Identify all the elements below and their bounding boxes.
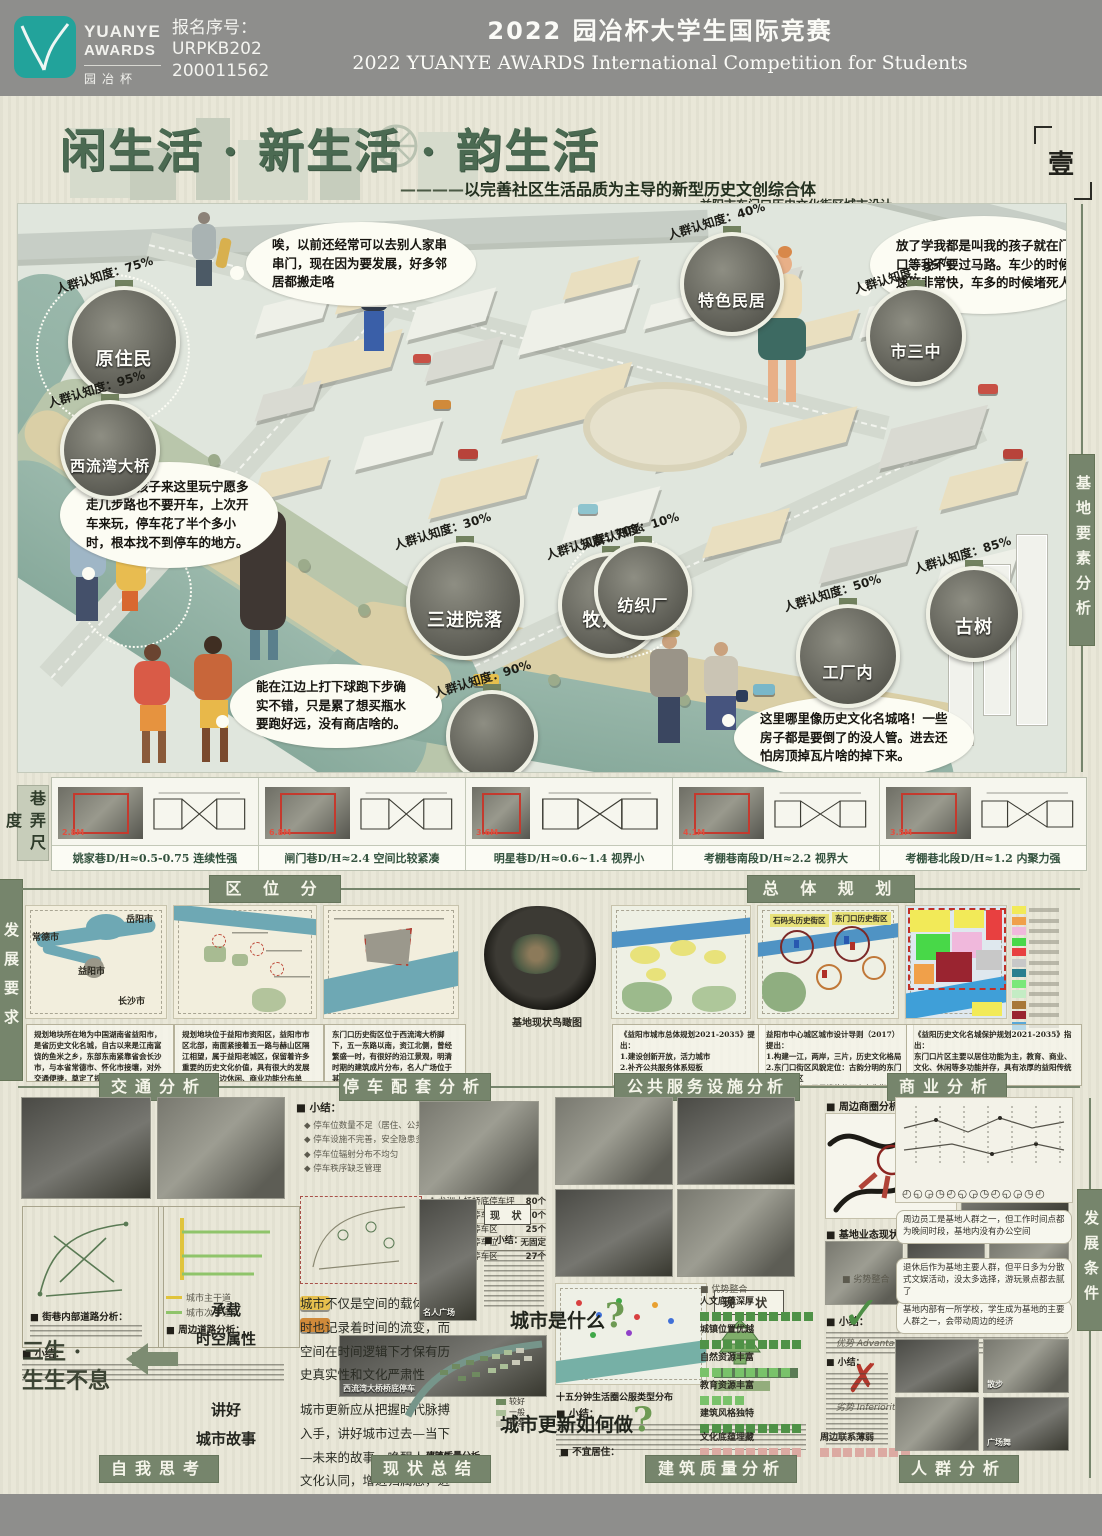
- page-number-marker: 壹: [1034, 126, 1092, 200]
- bracket-corner: [1034, 126, 1052, 144]
- landuse-legend: [1012, 906, 1066, 1018]
- competition-title-en: 2022 YUANYE AWARDS International Competi…: [300, 48, 1020, 78]
- crowd-photos: 散步 广场舞: [896, 1340, 1068, 1450]
- car: [413, 354, 431, 363]
- person-elderly-cart: [190, 212, 230, 304]
- alley-item: 6.8M 闸门巷D/H≈2.4 空间比较紧凑: [259, 778, 466, 870]
- alley-dimension: 2.8M: [62, 828, 84, 837]
- map-landuse: [906, 906, 1006, 1018]
- aerial-caption: 基地现状鸟瞰图: [512, 1014, 582, 1029]
- logo-cn: 园冶杯: [84, 65, 161, 87]
- quality-legend-good: 较好: [509, 1396, 525, 1407]
- section-header-self-reflection: 自我思考: [100, 1456, 218, 1482]
- competition-title-block: 2022 园冶杯大学生国际竞赛 2022 YUANYE AWARDS Inter…: [300, 14, 1020, 78]
- callout-name: 市三中: [890, 338, 941, 362]
- side-label-development-conditions: 发展条件: [1078, 1190, 1102, 1330]
- logo-line1: YUANYE: [84, 22, 161, 42]
- aerial-ink-view: 基地现状鸟瞰图: [478, 902, 606, 1030]
- section-rule: [22, 888, 1080, 890]
- status-summary: ■ 小结：: [484, 1230, 544, 1310]
- section-header-commerce: 商业分析: [888, 1074, 1006, 1100]
- callout-name: 工厂内: [822, 659, 873, 683]
- logo-line2: AWARDS: [84, 42, 161, 59]
- alley-caption: 明星巷D/H≈0.6~1.4 视界小: [466, 845, 672, 870]
- callout-folk-houses: 人群认知度：40% 特色民居: [680, 232, 784, 336]
- crowd-timeline-diagram: ◴◵◶◷◴◵◶◷◴◵◶◷◴: [896, 1098, 1072, 1202]
- car: [578, 504, 598, 514]
- city-label: 岳阳市: [126, 912, 153, 925]
- district-label: 石码头历史街区: [770, 914, 829, 927]
- callout-name: 纺织厂: [617, 592, 668, 616]
- callout-name: 西流湾大桥: [70, 455, 150, 476]
- alley-caption: 闸门巷D/H≈2.4 空间比较紧凑: [259, 845, 465, 870]
- alley-dimension: 3.6M: [476, 828, 498, 837]
- person-boy-red: [128, 644, 188, 772]
- section-header-location: 区 位 分 析: [210, 876, 340, 902]
- parking-photo: [556, 1190, 672, 1276]
- map-region: 常德市 岳阳市 益阳市 长沙市: [26, 906, 166, 1018]
- alley-photo: 4.1M: [679, 787, 764, 839]
- archway-photo: 名人广场: [420, 1200, 476, 1320]
- question-mark-icon: ?: [633, 1400, 653, 1440]
- speech-bubble-text: 这里哪里像历史文化名城咯！一些房子都是要倒了的没人管。进去还怕房顶掉瓦片啥的掉下…: [734, 700, 974, 772]
- poster-main-title: 闲生活 · 新生活 · 韵生活: [60, 128, 600, 174]
- photo-caption: 广场舞: [987, 1437, 1011, 1448]
- alley-item: 4.1M 考棚巷南段D/H≈2.2 视界大: [673, 778, 880, 870]
- quality-legend-fair: 一般: [509, 1407, 525, 1418]
- question-mark-icon: ?: [605, 1296, 625, 1336]
- crowd-bubble: 基地内部有一所学校，学生成为基地的主要人群之一，会带动周边的经济: [896, 1300, 1072, 1334]
- car: [978, 384, 998, 394]
- alley-photo: 6.8M: [265, 787, 350, 839]
- check-icon: ✓: [842, 1286, 881, 1340]
- callout-name: 古树: [955, 613, 993, 639]
- map-city: [174, 906, 316, 1018]
- crowd-summary-block: ■ 小结：: [826, 1352, 888, 1447]
- road-aerial-photo: [158, 1098, 284, 1198]
- city-label: 长沙市: [118, 994, 145, 1007]
- street-photo: [22, 1098, 150, 1198]
- crowd-bubble: 周边员工是基地人群之一，但工作时间点都为晚间时段，基地内没有办公空间: [896, 1210, 1072, 1244]
- section-header-building-quality: 建筑质量分析: [646, 1456, 796, 1482]
- parking-photo: [556, 1098, 672, 1184]
- side-label-base-elements: 基地要素分析: [1070, 455, 1094, 645]
- callout-name: 三进院落: [427, 606, 503, 632]
- keyword-block-2: 讲好城市故事: [196, 1396, 256, 1453]
- dh-ratio-diagram: [534, 787, 666, 839]
- map-site-parcel: [324, 906, 458, 1018]
- internal-road-diagram: ■ 街巷内部道路分析：: [22, 1206, 164, 1348]
- site-status-photo: [420, 1102, 538, 1194]
- alley-photo: 2.8M: [58, 787, 143, 839]
- district-label: 东门口历史街区: [832, 912, 891, 925]
- alley-item: 3.5M 考棚巷北段D/H≈1.2 内聚力强: [880, 778, 1086, 870]
- footer-bar: [0, 1494, 1102, 1536]
- section-header-parking: 停车配套分析: [340, 1074, 490, 1100]
- parking-photo: [678, 1190, 794, 1276]
- building-quality-axon: 较好 一般 较差: [400, 1330, 550, 1442]
- left-arrow-icon: [132, 1352, 178, 1366]
- header-bar: YUANYE AWARDS 园冶杯 报名序号： URPKB202 2000115…: [0, 0, 1102, 96]
- dh-ratio-diagram: [354, 787, 459, 839]
- callout-xiliuwan-bridge: 人群认知度：95% 西流湾大桥: [60, 400, 160, 500]
- internal-road-label: ■ 街巷内部道路分析：: [30, 1309, 156, 1323]
- callout-name: 原住民: [96, 345, 153, 371]
- callout-riverside: 人群认知度：90%: [446, 690, 538, 772]
- subtitle-dash: ————: [400, 180, 464, 199]
- callout-sanjin-courtyard: 人群认知度：30% 三进院落: [406, 542, 524, 660]
- map-masterplan: [612, 906, 750, 1018]
- photo-caption: 散步: [987, 1379, 1003, 1390]
- alley-dimension: 4.1M: [683, 828, 705, 837]
- dh-ratio-diagram: [975, 787, 1080, 839]
- callout-textile-factory: 人群认知度：10% 纺织厂: [594, 542, 692, 640]
- alley-scale-panel: 2.8M 姚家巷D/H≈0.5-0.75 连续性强 6.8M 闸门巷D/H≈2.…: [52, 778, 1086, 870]
- disadvantage-label: ■ 劣势整合: [842, 1272, 889, 1285]
- speech-bubble-text: 能在江边上打下球跑下步确实不错，只是累了想买瓶水要跑好远，没有商店啥的。: [230, 668, 442, 744]
- clock-row: ◴◵◶◷◴◵◶◷◴◵◶◷◴: [902, 1187, 1046, 1200]
- alley-item: 3.6M 明星巷D/H≈0.6~1.4 视界小: [466, 778, 673, 870]
- logo-wordmark: YUANYE AWARDS 园冶杯: [84, 22, 161, 87]
- callout-factory-interior: 人群认知度：50% 工厂内: [796, 604, 900, 708]
- registration-number: 报名序号： URPKB202 200011562: [172, 18, 269, 82]
- keyword-block-1: 承载时空属性: [196, 1296, 256, 1353]
- callout-no3-school: 人群认知度：95% 市三中: [866, 286, 966, 386]
- section-header-status-summary: 现状总结: [372, 1456, 490, 1482]
- city-label: 常德市: [32, 930, 59, 943]
- car: [433, 400, 451, 409]
- alley-dimension: 6.8M: [269, 828, 291, 837]
- crowd-bubble: 退休后作为基地主要人群，但平日多为分散式文娱活动，没太多选择，游玩景点都去腻了: [896, 1258, 1072, 1304]
- competition-title-cn: 2022 园冶杯大学生国际竞赛: [300, 14, 1020, 48]
- section-header-public-service: 公共服务设施分析: [615, 1074, 799, 1100]
- bracket-corner: [1074, 182, 1092, 200]
- alley-caption: 姚家巷D/H≈0.5-0.75 连续性强: [52, 845, 258, 870]
- alley-dimension: 3.5M: [890, 828, 912, 837]
- alley-caption: 考棚巷北段D/H≈1.2 内聚力强: [880, 845, 1086, 870]
- city-label: 益阳市: [78, 964, 105, 977]
- site-axonometric-illustration: 唉，以前还经常可以去别人家串串门，现在因为要发展，好多邻居都搬走咯 放了学我都是…: [18, 204, 1066, 772]
- quality-legend-poor: 较差: [509, 1418, 525, 1429]
- dh-ratio-diagram: [147, 787, 252, 839]
- map-historic-districts: 石码头历史街区 东门口历史街区: [758, 906, 898, 1018]
- crowd-bubbles: 基地内部有一所学校，学生成为基地的主要人群之一，会带动周边的经济: [896, 1300, 1072, 1334]
- section-header-traffic: 交通分析: [100, 1074, 218, 1100]
- callout-ancient-tree: 人群认知度：85% 古树: [926, 566, 1022, 662]
- car: [458, 449, 478, 459]
- callout-name: 特色民居: [698, 287, 766, 311]
- alley-item: 2.8M 姚家巷D/H≈0.5-0.75 连续性强: [52, 778, 259, 870]
- parking-site-sketch: [300, 1196, 422, 1284]
- sports-oval: [583, 382, 747, 472]
- speech-bubble: 唉，以前还经常可以去别人家串串门，现在因为要发展，好多邻居都搬走咯: [246, 222, 476, 306]
- alley-photo: 3.6M: [472, 787, 530, 839]
- car: [1003, 449, 1023, 459]
- dh-ratio-diagram: [768, 787, 873, 839]
- alley-caption: 考棚巷南段D/H≈2.2 视界大: [673, 845, 879, 870]
- yuanye-logo-icon: [14, 16, 76, 78]
- slogan-calligraphy: 三生 · 生生不息: [22, 1338, 110, 1395]
- parking-photo: [678, 1098, 794, 1184]
- photo-caption: 名人广场: [423, 1307, 455, 1318]
- section-header-crowd-analysis: 人群分析: [900, 1456, 1018, 1482]
- page-number-text: 壹: [1048, 144, 1074, 181]
- uninhabitable-label: ■ 不宜居住：: [560, 1444, 620, 1458]
- speech-bubble: 能在江边上打下球跑下步确实不错，只是累了想买瓶水要跑好远，没有商店啥的。: [230, 664, 442, 748]
- side-label-development-demand: 发展要求: [0, 880, 22, 1080]
- section-header-masterplan: 总 体 规 划: [748, 876, 914, 902]
- alley-photo: 3.5M: [886, 787, 971, 839]
- side-label-alley-scale: 巷弄尺度: [18, 786, 48, 860]
- competition-poster: YUANYE AWARDS 园冶杯 报名序号： URPKB202 2000115…: [0, 0, 1102, 1536]
- status-box: 现 状: [484, 1204, 531, 1225]
- speech-bubble-text: 唉，以前还经常可以去别人家串串门，现在因为要发展，好多邻居都搬走咯: [246, 226, 476, 302]
